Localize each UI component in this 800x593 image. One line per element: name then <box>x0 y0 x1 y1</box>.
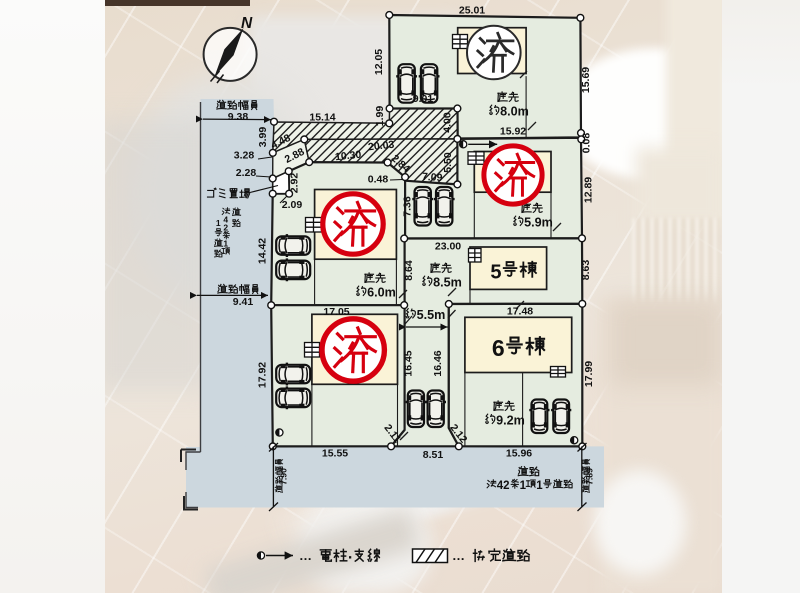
svg-text:3.28: 3.28 <box>234 150 255 162</box>
svg-text:25.01: 25.01 <box>459 5 485 17</box>
svg-text:7.89: 7.89 <box>584 468 594 485</box>
svg-text:1: 1 <box>223 239 228 249</box>
svg-text:15.14: 15.14 <box>309 112 335 124</box>
svg-text:9.38: 9.38 <box>228 111 249 123</box>
svg-text:1: 1 <box>536 480 543 492</box>
svg-text:N: N <box>241 15 253 32</box>
svg-text:17.99: 17.99 <box>583 361 595 387</box>
svg-text:17.92: 17.92 <box>257 362 269 388</box>
svg-text:2.28: 2.28 <box>236 167 257 179</box>
svg-text:15.96: 15.96 <box>506 448 532 460</box>
svg-text:1: 1 <box>216 218 221 228</box>
svg-text:6.0m: 6.0m <box>367 286 396 300</box>
svg-text:5.5m: 5.5m <box>417 308 446 322</box>
svg-text:23.00: 23.00 <box>435 241 461 253</box>
svg-text:…: … <box>299 548 312 563</box>
svg-text:2.09: 2.09 <box>282 199 303 211</box>
svg-text:1: 1 <box>520 480 527 492</box>
svg-text:·: · <box>348 549 353 567</box>
svg-text:7.09: 7.09 <box>422 171 443 184</box>
svg-text:9.41: 9.41 <box>233 296 254 308</box>
svg-text:0.48: 0.48 <box>368 174 389 186</box>
svg-text:1.99: 1.99 <box>374 106 386 127</box>
svg-text:12.05: 12.05 <box>373 49 385 75</box>
svg-text:15.69: 15.69 <box>580 67 592 93</box>
svg-text:4.00: 4.00 <box>442 112 454 133</box>
svg-text:16.46: 16.46 <box>432 350 444 376</box>
svg-text:0.08: 0.08 <box>581 133 593 154</box>
svg-text:14.42: 14.42 <box>257 238 269 264</box>
svg-text:15.92: 15.92 <box>500 126 526 138</box>
svg-text:6: 6 <box>492 335 505 361</box>
svg-text:15.55: 15.55 <box>322 448 348 460</box>
svg-text:…: … <box>452 548 465 563</box>
svg-text:7.90: 7.90 <box>278 468 288 485</box>
svg-text:16.45: 16.45 <box>403 350 415 376</box>
svg-text:2.92: 2.92 <box>289 173 301 194</box>
svg-text:8.0m: 8.0m <box>500 105 529 119</box>
svg-text:3.99: 3.99 <box>257 127 269 148</box>
svg-text:8.63: 8.63 <box>580 260 592 281</box>
svg-text:12.89: 12.89 <box>583 177 595 203</box>
svg-text:8.51: 8.51 <box>423 449 444 461</box>
svg-text:8.64: 8.64 <box>403 260 415 281</box>
svg-text:5.9m: 5.9m <box>524 216 553 230</box>
svg-text:42: 42 <box>497 480 510 492</box>
svg-text:7.36: 7.36 <box>402 196 414 217</box>
svg-text:9.01: 9.01 <box>413 93 434 105</box>
svg-text:5.50: 5.50 <box>442 152 454 173</box>
svg-text:17.05: 17.05 <box>323 306 349 318</box>
svg-text:5: 5 <box>490 261 501 283</box>
svg-text:17.48: 17.48 <box>507 306 533 318</box>
svg-text:8.5m: 8.5m <box>433 276 462 290</box>
svg-text:9.2m: 9.2m <box>496 414 525 428</box>
